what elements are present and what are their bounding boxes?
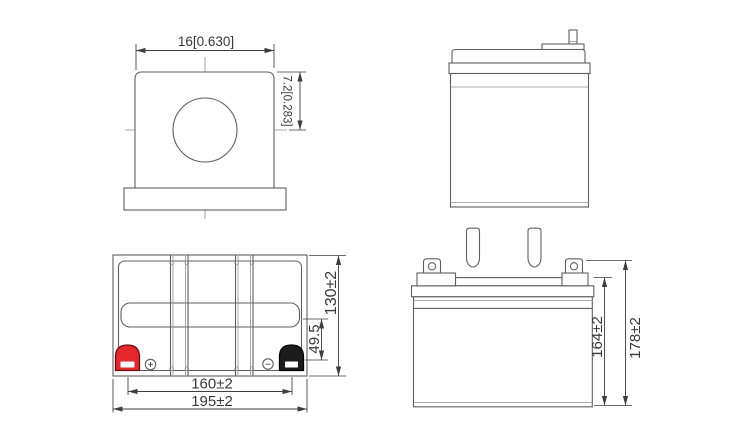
- lid-band: [449, 63, 590, 74]
- terminal-bracket-left: [417, 259, 456, 286]
- dim-label-case-height: 164±2: [589, 316, 606, 358]
- case-body: [414, 297, 593, 407]
- bracket-base: [417, 273, 456, 286]
- drawing-svg: 16[0.630] 7.2[0.283]: [0, 0, 750, 440]
- handle-strap-left: [466, 228, 479, 267]
- bracket-tab: [566, 259, 583, 273]
- negative-terminal-slot: [285, 362, 298, 368]
- terminal-post: [569, 30, 577, 44]
- battery-top-view: + − 160±2 195±2 130±2: [113, 255, 346, 413]
- battery-side-view: [449, 30, 590, 207]
- terminal-base-plate: [124, 188, 286, 210]
- handle-strap-right: [528, 228, 541, 267]
- dim-label-terminal-height: 7.2[0.283]: [281, 75, 293, 126]
- bracket-tab: [424, 259, 441, 273]
- dim-overall-depth: 130±2: [309, 256, 346, 377]
- lid: [412, 286, 594, 297]
- dim-terminal-height: 7.2[0.283]: [277, 72, 306, 130]
- terminal-detail-view: 16[0.630] 7.2[0.283]: [124, 34, 306, 219]
- positive-mark: +: [148, 360, 154, 371]
- battery-dimension-drawing: 16[0.630] 7.2[0.283]: [0, 0, 750, 440]
- case-body: [451, 74, 589, 208]
- bracket-base: [562, 273, 588, 286]
- dim-label-terminal-width: 16[0.630]: [178, 34, 234, 49]
- negative-mark: −: [265, 359, 271, 370]
- dim-terminal-offset: 49.5: [303, 319, 328, 360]
- lid-top: [452, 50, 585, 64]
- dim-label-overall-depth: 130±2: [323, 271, 340, 315]
- positive-terminal-slot: [121, 362, 135, 368]
- outer-edge: [113, 255, 307, 376]
- dim-label-overall-width: 195±2: [191, 393, 233, 410]
- dim-label-terminal-offset: 49.5: [306, 324, 323, 353]
- dim-label-overall-height: 178±2: [627, 317, 644, 359]
- terminal-bracket-right: [562, 259, 588, 286]
- dim-label-terminal-spacing: 160±2: [191, 376, 233, 393]
- lid-center-platform: [456, 278, 563, 286]
- terminal-body-outline: [135, 72, 274, 188]
- battery-front-view: 164±2 178±2: [412, 228, 645, 407]
- terminal-plate: [542, 44, 584, 50]
